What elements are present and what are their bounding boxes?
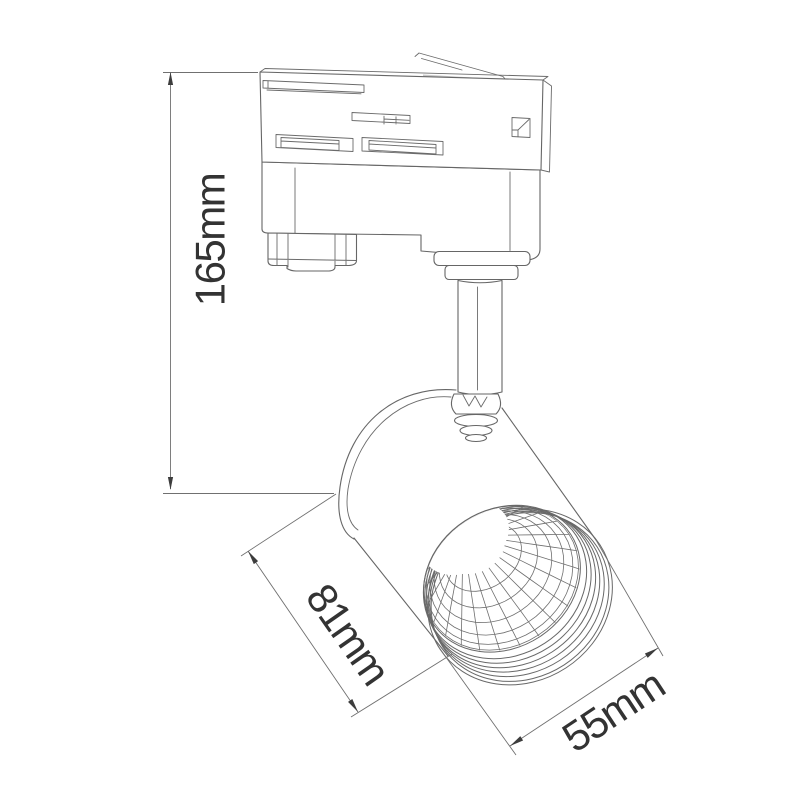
dimension-body-length: 81mm bbox=[241, 494, 452, 717]
head-back-cap bbox=[339, 390, 456, 539]
arrowhead-down bbox=[168, 477, 173, 490]
dimension-drawing-page: 165mm 81mm 55mm bbox=[0, 0, 800, 800]
arrowhead-lower-right bbox=[348, 699, 358, 712]
height-dimension-label: 165mm bbox=[187, 174, 234, 307]
arrowhead-lower-left bbox=[510, 736, 523, 746]
arrowhead-up bbox=[168, 72, 173, 85]
head-diameter-dimension-label: 55mm bbox=[554, 661, 672, 761]
track-light-dimension-drawing: 165mm 81mm 55mm bbox=[0, 0, 800, 800]
adjustment-knob bbox=[268, 233, 357, 271]
body-length-dimension-label: 81mm bbox=[297, 575, 399, 693]
stem bbox=[458, 280, 502, 395]
head-barrel-top-edge bbox=[502, 408, 596, 540]
adapter-front-plate bbox=[260, 69, 552, 173]
mounting-boss bbox=[434, 252, 530, 280]
arrowhead-upper-left bbox=[248, 551, 258, 564]
reflector-bowl-rim bbox=[396, 476, 609, 681]
arrowhead-upper-right bbox=[645, 648, 658, 658]
track-adapter bbox=[260, 53, 552, 280]
swivel-joint bbox=[452, 394, 501, 442]
reflector-highlight bbox=[410, 488, 522, 589]
